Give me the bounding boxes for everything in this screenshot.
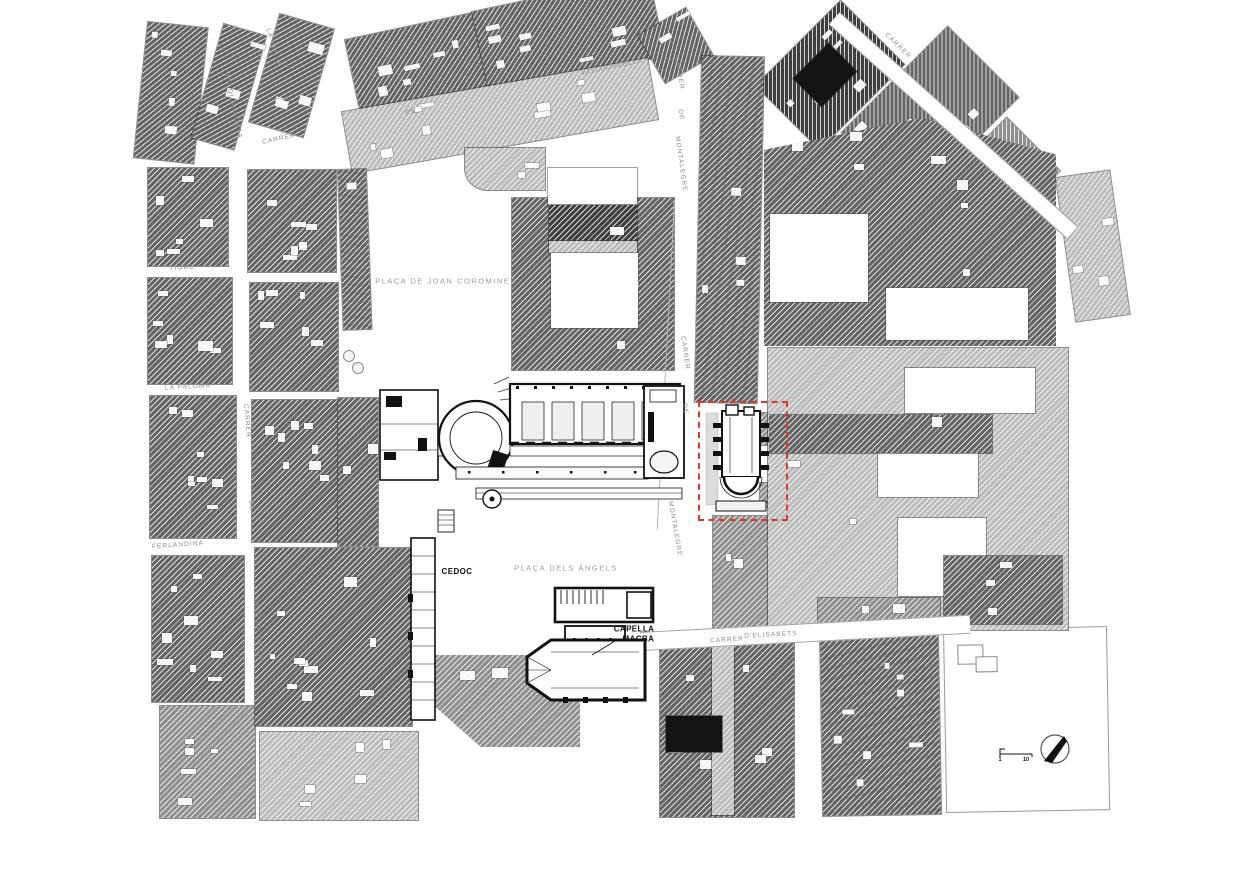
street-label-montalegre-2: DE (677, 109, 686, 121)
street-label-carrer-top-right: CARRER (883, 32, 912, 61)
street-label-carrer-jc-1: CARRER (242, 404, 252, 439)
labels-layer: LA VERGECARRERDEVALLDONZELLAJOAQUÍN COST… (0, 0, 1250, 883)
building-label-capella-macba: CAPELLA MACBA (614, 624, 655, 643)
site-plan-map: 1 10 LA VERGECARRERDEVALLDONZELLAJOAQUÍN… (0, 0, 1250, 883)
street-label-montalegre-5: DE (681, 403, 689, 415)
street-label-carrer-valldonzella-1: CARRER (262, 132, 297, 146)
street-label-montalegre-1: CARRER (673, 56, 686, 91)
street-label-joaquin-costa-lower: JOAQUÍN COSTA (252, 596, 265, 663)
street-label-montalegre-3: MONTALEGRE (674, 136, 689, 192)
street-label-carrer-jc-2: DE (247, 500, 255, 512)
street-label-joaquin-costa-upper: JOAQUÍN COSTA (223, 73, 244, 140)
street-label-tigre: TIGRE (169, 264, 195, 272)
street-label-montalegre-6: MONTALEGRE (667, 501, 684, 557)
street-label-elisabets-1: CARRER (710, 636, 744, 645)
street-label-ferlandina: FERLANDINA (152, 540, 205, 551)
street-label-carrer-valldonzella-3: VALLDONZELLA (580, 57, 643, 77)
street-label-elisabets-2: D'ELISABETS (744, 630, 798, 640)
place-label-placa-dels-angels: PLAÇA DELS ÀNGELS (514, 564, 618, 573)
street-label-carrer-valldonzella-2: DE (405, 107, 417, 116)
building-label-cedoc: CEDOC (442, 567, 473, 577)
street-label-montalegre-4: CARRER (679, 336, 691, 371)
place-label-joan-coromines: PLAÇA DE JOAN COROMINES (375, 277, 517, 286)
street-label-la-paloma: LA PALOMA (165, 382, 211, 391)
street-label-la-verge: LA VERGE (264, 27, 283, 68)
